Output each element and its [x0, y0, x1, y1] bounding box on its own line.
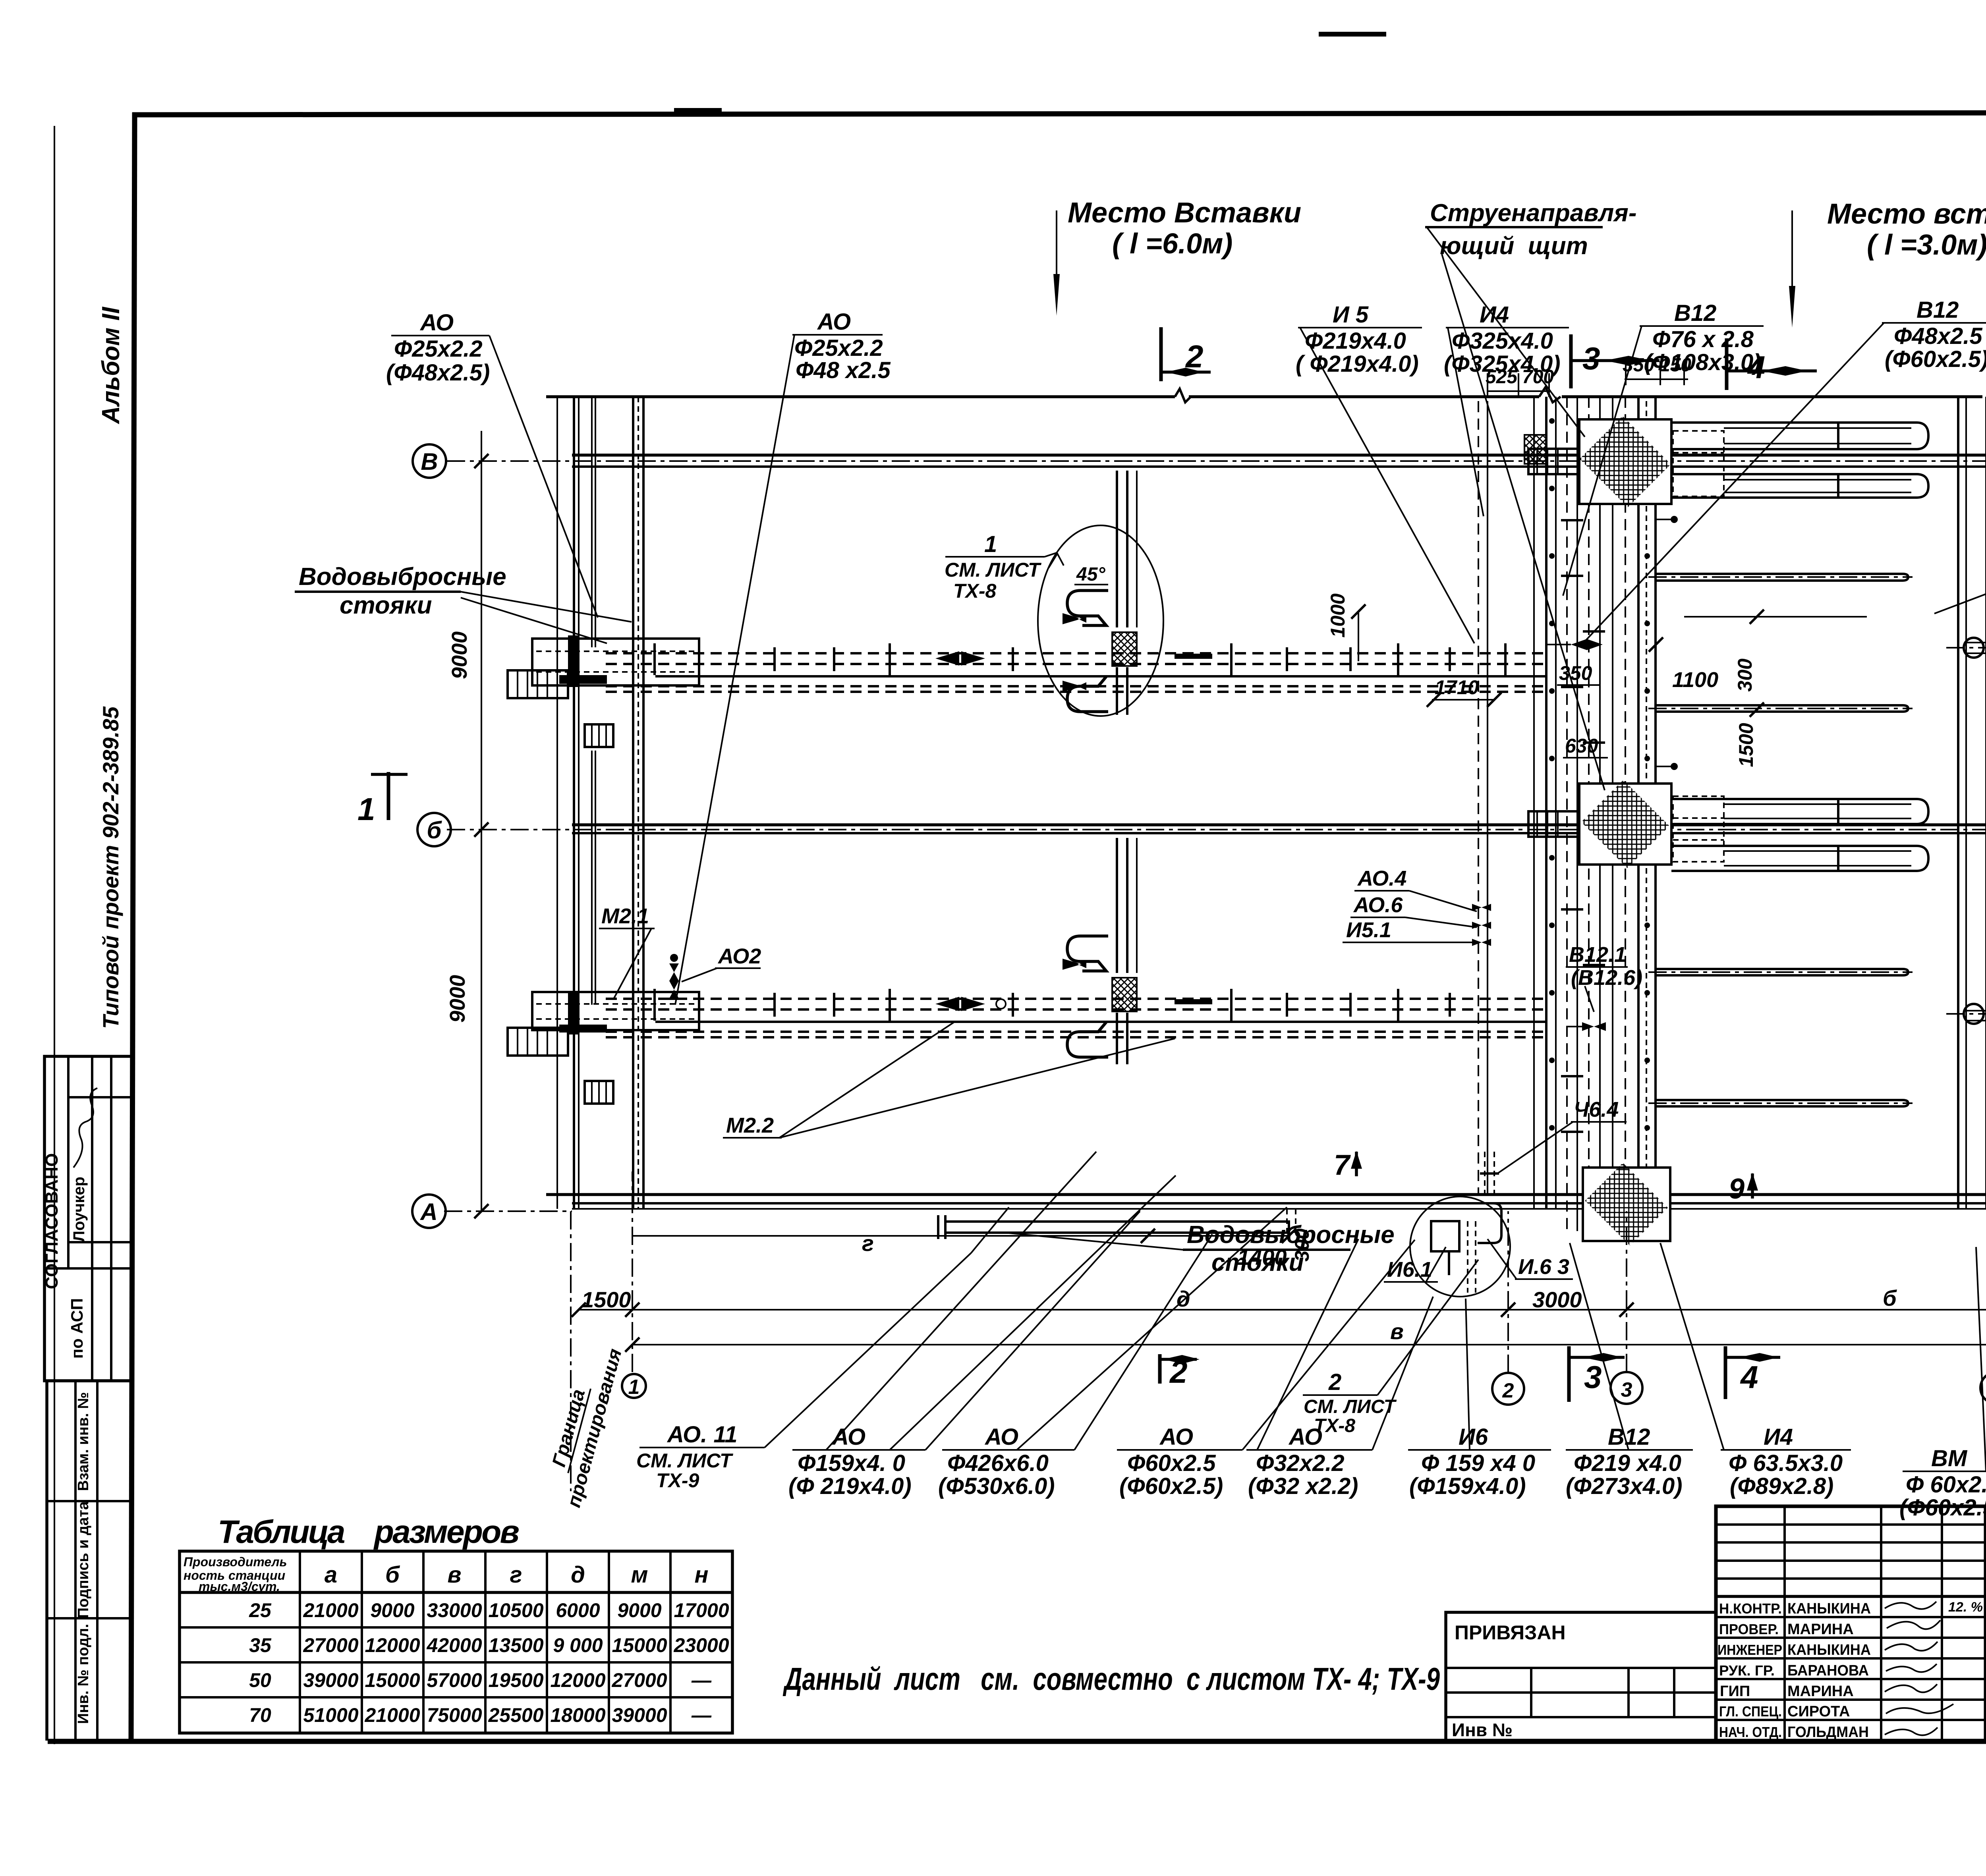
svg-text:ГИП: ГИП	[1720, 1683, 1750, 1700]
svg-text:А: А	[419, 1199, 437, 1225]
svg-text:Струенаправля-: Струенаправля-	[1430, 199, 1636, 227]
svg-text:12. %: 12. %	[1948, 1600, 1983, 1615]
svg-text:стояки: стояки	[340, 592, 432, 619]
svg-text:9 000: 9 000	[553, 1634, 603, 1656]
svg-text:( l =6.0м): ( l =6.0м)	[1112, 228, 1233, 260]
svg-text:1500: 1500	[582, 1287, 631, 1312]
svg-text:(Ф60х2.5): (Ф60х2.5)	[1885, 346, 1986, 372]
svg-text:Инв. № подл.: Инв. № подл.	[75, 1624, 92, 1724]
svg-text:М2.1: М2.1	[601, 904, 649, 928]
svg-text:9: 9	[1729, 1173, 1745, 1205]
svg-text:Ф48 х2.5: Ф48 х2.5	[796, 357, 891, 383]
svg-text:АО: АО	[984, 1424, 1018, 1450]
svg-text:ПРИВЯЗАН: ПРИВЯЗАН	[1455, 1621, 1566, 1644]
svg-text:СМ. ЛИСТ: СМ. ЛИСТ	[1304, 1396, 1397, 1417]
svg-text:2: 2	[1502, 1379, 1514, 1402]
svg-text:БАРАНОВА: БАРАНОВА	[1787, 1662, 1869, 1679]
svg-text:СМ. ЛИСТ: СМ. ЛИСТ	[636, 1449, 734, 1472]
svg-text:9000: 9000	[446, 975, 469, 1023]
svg-text:75000: 75000	[427, 1704, 482, 1726]
svg-text:б: б	[427, 817, 442, 843]
svg-text:Ф48х2.5: Ф48х2.5	[1894, 323, 1982, 349]
svg-text:(Ф273х4.0): (Ф273х4.0)	[1566, 1473, 1683, 1499]
svg-text:М2.2: М2.2	[726, 1114, 774, 1137]
svg-text:Ф219 х4.0: Ф219 х4.0	[1574, 1450, 1681, 1476]
svg-text:д: д	[1177, 1286, 1190, 1311]
svg-text:И6: И6	[1459, 1424, 1488, 1450]
svg-text:1500: 1500	[1735, 723, 1757, 767]
svg-text:39000: 39000	[612, 1704, 667, 1726]
svg-text:1: 1	[628, 1376, 640, 1399]
svg-text:Ф25х2.2: Ф25х2.2	[394, 336, 483, 362]
svg-text:7: 7	[1334, 1149, 1351, 1181]
svg-text:12000: 12000	[550, 1669, 605, 1691]
svg-text:Данный лист см. совместно: Данный лист см. совместно с листом ТХ- 4…	[782, 1661, 1440, 1697]
svg-text:Ф 60х2.5: Ф 60х2.5	[1906, 1472, 1986, 1498]
svg-text:25: 25	[249, 1599, 272, 1621]
svg-text:Место Вставки: Место Вставки	[1068, 197, 1301, 229]
svg-text:д: д	[571, 1562, 585, 1588]
svg-text:в: в	[1390, 1319, 1404, 1344]
svg-text:КАНЫКИНА: КАНЫКИНА	[1787, 1600, 1871, 1617]
svg-text:( l =3.0м): ( l =3.0м)	[1867, 229, 1986, 261]
svg-text:РУК. ГР.: РУК. ГР.	[1719, 1662, 1775, 1679]
svg-text:СОГЛАСОВАНО: СОГЛАСОВАНО	[42, 1153, 62, 1289]
svg-text:Н.КОНТР.: Н.КОНТР.	[1719, 1600, 1782, 1617]
svg-text:МАРИНА: МАРИНА	[1787, 1683, 1854, 1700]
svg-text:АО. 11: АО. 11	[667, 1422, 738, 1448]
svg-text:ГОЛЬДМАН: ГОЛЬДМАН	[1787, 1724, 1869, 1741]
svg-text:ИНЖЕНЕР: ИНЖЕНЕР	[1717, 1642, 1782, 1658]
svg-text:( Ф219х4.0): ( Ф219х4.0)	[1296, 351, 1419, 377]
svg-text:(Ф32 х2.2): (Ф32 х2.2)	[1248, 1473, 1358, 1499]
svg-text:ющий щит: ющий щит	[1440, 232, 1588, 260]
svg-text:3: 3	[1584, 1359, 1602, 1395]
svg-text:АО: АО	[831, 1424, 865, 1450]
svg-text:1: 1	[357, 791, 375, 827]
svg-text:И.6 3: И.6 3	[1518, 1255, 1569, 1279]
svg-text:42000: 42000	[426, 1634, 482, 1656]
svg-text:НАЧ. ОТД.: НАЧ. ОТД.	[1719, 1724, 1782, 1740]
svg-text:Ф60х2.5: Ф60х2.5	[1127, 1450, 1216, 1476]
svg-text:(Ф325х4.0): (Ф325х4.0)	[1444, 351, 1561, 377]
svg-text:И 5: И 5	[1333, 302, 1369, 328]
svg-text:АО: АО	[1159, 1424, 1193, 1450]
svg-text:6000: 6000	[556, 1599, 600, 1621]
svg-text:27000: 27000	[303, 1634, 358, 1656]
svg-text:18000: 18000	[550, 1704, 605, 1726]
svg-text:Альбом II: Альбом II	[97, 306, 125, 425]
svg-text:21000: 21000	[364, 1704, 420, 1726]
svg-text:б: б	[385, 1562, 400, 1588]
svg-text:3000: 3000	[1532, 1287, 1582, 1312]
svg-text:В12: В12	[1916, 297, 1959, 323]
svg-text:27000: 27000	[611, 1669, 667, 1691]
svg-text:Ф426х6.0: Ф426х6.0	[947, 1450, 1049, 1476]
svg-text:21000: 21000	[303, 1599, 358, 1621]
svg-text:В: В	[421, 448, 438, 475]
svg-text:50: 50	[249, 1669, 271, 1691]
svg-text:(Ф89х2.8): (Ф89х2.8)	[1730, 1473, 1833, 1499]
svg-text:Место вставки: Место вставки	[1827, 198, 1986, 230]
svg-text:57000: 57000	[427, 1669, 482, 1691]
svg-text:19500: 19500	[488, 1669, 543, 1691]
svg-text:300: 300	[1734, 658, 1756, 692]
svg-text:(Ф 219х4.0): (Ф 219х4.0)	[788, 1473, 912, 1499]
svg-text:Таблица размеров: Таблица размеров	[218, 1514, 520, 1550]
svg-text:Ф325х4.0: Ф325х4.0	[1452, 328, 1553, 354]
svg-text:4: 4	[1740, 1359, 1758, 1395]
svg-text:н: н	[694, 1562, 708, 1588]
svg-text:35: 35	[249, 1634, 272, 1656]
svg-text:Водовыбросные: Водовыбросные	[299, 563, 506, 591]
svg-text:70: 70	[249, 1704, 271, 1726]
svg-text:ТХ-9: ТХ-9	[656, 1469, 699, 1492]
svg-text:И4: И4	[1764, 1424, 1793, 1450]
svg-text:ТХ-8: ТХ-8	[953, 580, 997, 602]
svg-text:В12: В12	[1674, 300, 1716, 326]
svg-text:25500: 25500	[488, 1704, 543, 1726]
svg-text:(Ф48х2.5): (Ф48х2.5)	[386, 360, 490, 386]
svg-text:Ф159х4. 0: Ф159х4. 0	[798, 1450, 905, 1476]
svg-text:(Ф60х2.5): (Ф60х2.5)	[1899, 1495, 1986, 1521]
svg-text:Инв №: Инв №	[1452, 1720, 1513, 1740]
svg-text:СМ. ЛИСТ: СМ. ЛИСТ	[945, 559, 1042, 581]
svg-text:(Ф530х6.0): (Ф530х6.0)	[938, 1473, 1055, 1499]
svg-text:10500: 10500	[488, 1599, 543, 1621]
svg-text:Типовой проект 902-2-389.85: Типовой проект 902-2-389.85	[98, 706, 123, 1029]
svg-text:(В12.6): (В12.6)	[1571, 966, 1642, 990]
svg-text:И6.1: И6.1	[1387, 1258, 1432, 1282]
svg-text:Ф32х2.2: Ф32х2.2	[1256, 1450, 1345, 1476]
svg-text:ТХ-8: ТХ-8	[1314, 1415, 1355, 1436]
svg-text:ВМ: ВМ	[1931, 1446, 1968, 1471]
svg-text:(Ф159х4.0): (Ф159х4.0)	[1409, 1473, 1526, 1499]
svg-text:Производитель: Производитель	[184, 1555, 287, 1569]
svg-text:АО: АО	[817, 309, 851, 335]
svg-text:2: 2	[1169, 1354, 1188, 1390]
svg-text:9000: 9000	[370, 1599, 414, 1621]
svg-text:1000: 1000	[1327, 593, 1349, 637]
svg-text:350: 350	[1559, 662, 1592, 684]
svg-text:(Ф108х3.0): (Ф108х3.0)	[1644, 349, 1761, 375]
svg-text:Взам. инв. №: Взам. инв. №	[75, 1392, 92, 1491]
svg-text:АО.4: АО.4	[1357, 867, 1406, 890]
svg-text:(Ф60х2.5): (Ф60х2.5)	[1119, 1473, 1223, 1499]
svg-text:ГЛ. СПЕЦ.: ГЛ. СПЕЦ.	[1719, 1703, 1782, 1720]
svg-text:Лоучкер: Лоучкер	[70, 1177, 88, 1242]
svg-text:3: 3	[1621, 1378, 1632, 1401]
svg-text:51000: 51000	[303, 1704, 358, 1726]
svg-text:а: а	[325, 1562, 337, 1588]
svg-text:МАРИНА: МАРИНА	[1787, 1621, 1854, 1638]
svg-text:12000: 12000	[365, 1634, 420, 1656]
svg-text:2: 2	[1328, 1369, 1341, 1395]
svg-text:3: 3	[1582, 341, 1600, 376]
svg-text:1: 1	[984, 531, 997, 557]
svg-text:АО: АО	[419, 310, 454, 336]
svg-text:15000: 15000	[612, 1634, 667, 1656]
svg-text:2: 2	[1185, 339, 1204, 374]
svg-text:тыс.м3/сут.: тыс.м3/сут.	[199, 1579, 280, 1594]
svg-text:б: б	[1883, 1285, 1897, 1310]
svg-text:АО2: АО2	[717, 944, 761, 968]
svg-text:м: м	[631, 1562, 648, 1588]
svg-text:39000: 39000	[303, 1669, 358, 1691]
svg-text:В12.1: В12.1	[1569, 943, 1626, 967]
svg-text:КАНЫКИНА: КАНЫКИНА	[1787, 1642, 1871, 1658]
svg-text:9000: 9000	[448, 631, 471, 679]
svg-text:Ч6.4: Ч6.4	[1574, 1098, 1619, 1121]
svg-text:г: г	[510, 1562, 522, 1588]
svg-text:г: г	[862, 1231, 874, 1256]
svg-text:1100: 1100	[1672, 668, 1718, 692]
svg-text:в: в	[447, 1562, 461, 1588]
svg-text:СИРОТА: СИРОТА	[1787, 1703, 1850, 1720]
svg-text:45°: 45°	[1076, 564, 1105, 585]
svg-text:АО.6: АО.6	[1353, 893, 1403, 917]
svg-text:Ф 63.5х3.0: Ф 63.5х3.0	[1729, 1450, 1843, 1476]
svg-text:1710: 1710	[1435, 676, 1479, 699]
svg-text:17000: 17000	[674, 1599, 729, 1621]
svg-text:33000: 33000	[427, 1599, 482, 1621]
svg-text:13500: 13500	[488, 1634, 543, 1656]
svg-text:Ф 159 х4 0: Ф 159 х4 0	[1421, 1450, 1535, 1476]
svg-text:В12: В12	[1608, 1424, 1650, 1450]
svg-text:И5.1: И5.1	[1346, 918, 1391, 942]
svg-text:Водовыбросные: Водовыбросные	[1187, 1221, 1395, 1249]
svg-text:9000: 9000	[617, 1599, 661, 1621]
svg-text:Ф219х4.0: Ф219х4.0	[1305, 328, 1406, 354]
svg-text:—: —	[691, 1669, 712, 1691]
svg-text:23000: 23000	[673, 1634, 729, 1656]
svg-text:—: —	[691, 1704, 712, 1726]
svg-text:Ф76 х 2.8: Ф76 х 2.8	[1652, 326, 1754, 352]
svg-text:ПРОВЕР.: ПРОВЕР.	[1719, 1621, 1779, 1637]
svg-text:Подпись и дата: Подпись и дата	[75, 1501, 92, 1618]
svg-text:по АСП: по АСП	[68, 1298, 86, 1359]
svg-text:15000: 15000	[365, 1669, 420, 1691]
svg-text:И4: И4	[1480, 302, 1509, 328]
